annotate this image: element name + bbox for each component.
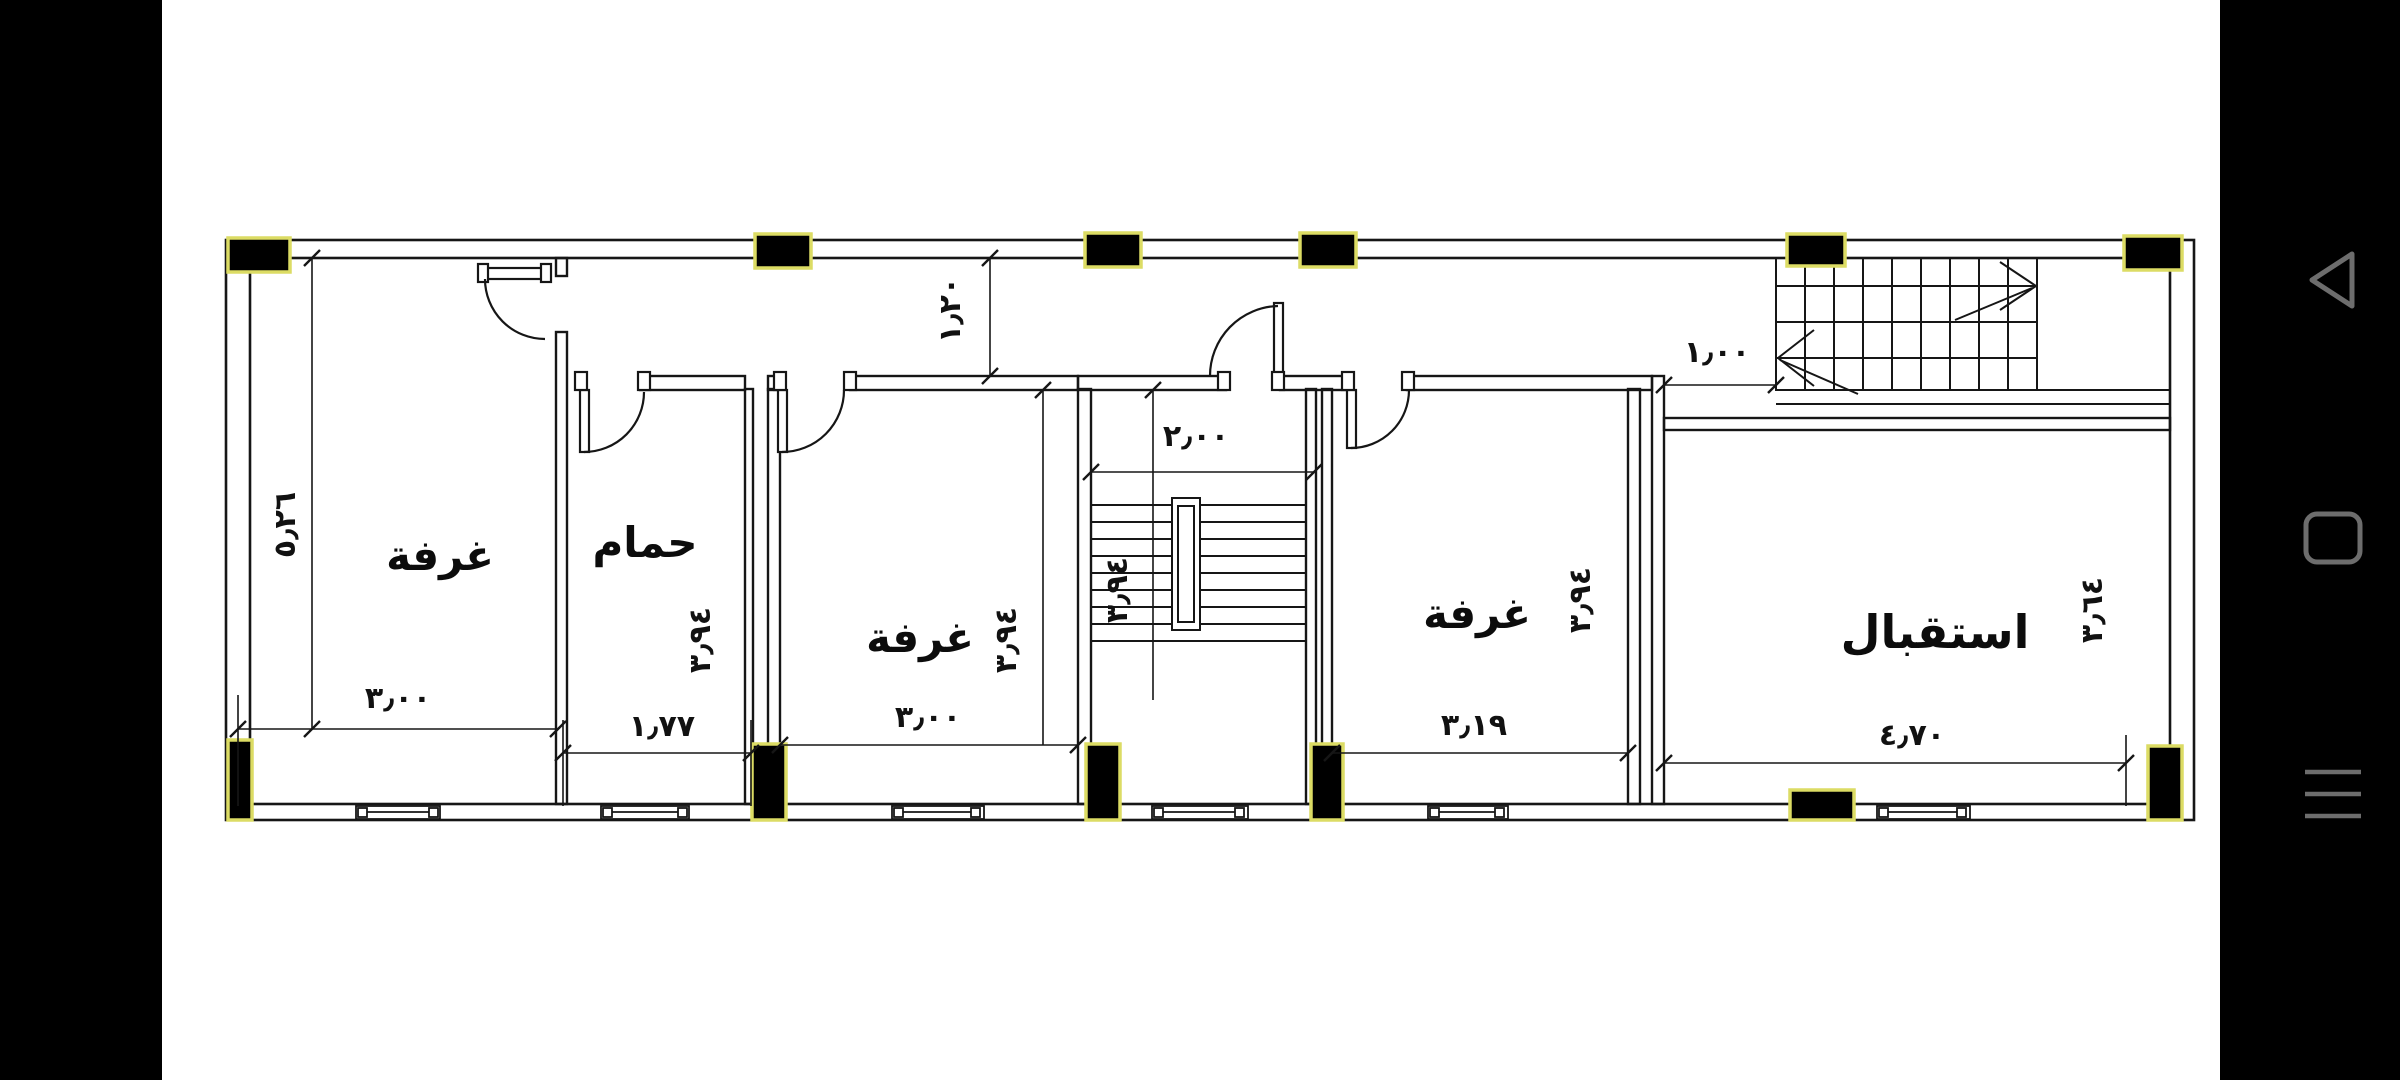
door-leaf-roommiddle [778, 390, 787, 452]
window [892, 806, 984, 819]
dim-room-middle-depth: ٣٫٩٤ [989, 607, 1024, 673]
dim-room-left-width: ٣٫٠٠ [365, 681, 431, 716]
column [752, 744, 786, 820]
door-post [1272, 372, 1284, 390]
dim-room-right-depth: ٣٫٩٤ [1563, 567, 1598, 633]
door-leaf-entrance [1274, 303, 1283, 376]
dim-stair-depth: ٣٫٩٤ [1100, 557, 1135, 623]
stair-rail-outer [1172, 498, 1200, 630]
room-label-left: غرفة [386, 531, 494, 581]
window [1877, 806, 1970, 819]
dim-stair-width: ٢٫٠٠ [1163, 419, 1229, 454]
room-label-bathroom: حمام [593, 518, 698, 568]
dim-stair-passage: ١٫٠٠ [1684, 335, 1750, 370]
door-leaf-leftroom [485, 268, 547, 279]
phone-screen: غرفة حمام غرفة غرفة استقبال ٣٫٠٠ ١٫٧٧ ٣٫… [0, 0, 2400, 1080]
door-post [478, 264, 488, 282]
window [601, 806, 689, 819]
dim-room-right-width: ٣٫١٩ [1441, 708, 1507, 743]
column [755, 234, 811, 268]
column [1086, 744, 1120, 820]
door-post [1342, 372, 1354, 390]
dim-overall-left: ٥٫٢٦ [268, 492, 303, 558]
door-post [1402, 372, 1414, 390]
door-post [541, 264, 551, 282]
column [1790, 790, 1854, 820]
door-leaf-roomright [1347, 390, 1356, 448]
column [2124, 236, 2182, 270]
room-label-middle: غرفة [866, 613, 974, 663]
door-post [774, 372, 786, 390]
column [1311, 744, 1343, 820]
column [228, 238, 290, 272]
column [2148, 746, 2182, 820]
dim-room-middle-width: ٣٫٠٠ [895, 700, 961, 735]
door-post [844, 372, 856, 390]
column [1300, 233, 1356, 267]
column [1787, 234, 1845, 266]
column [1085, 233, 1141, 267]
window [1152, 806, 1248, 819]
dim-bathroom-depth: ٣٫٩٤ [683, 607, 718, 673]
door-post [638, 372, 650, 390]
room-label-reception: استقبال [1841, 605, 2030, 659]
door-post [575, 372, 587, 390]
dim-reception-width: ٤٫٧٠ [1879, 718, 1945, 753]
dim-bathroom-width: ١٫٧٧ [629, 709, 695, 744]
door-post [1218, 372, 1230, 390]
floor-plan-canvas: غرفة حمام غرفة غرفة استقبال ٣٫٠٠ ١٫٧٧ ٣٫… [0, 0, 2400, 1080]
door-leaf-bathroom [580, 390, 589, 452]
window [356, 806, 440, 819]
column [228, 740, 252, 820]
room-label-right: غرفة [1423, 589, 1531, 639]
dim-corridor-depth: ١٫٢٠ [933, 277, 968, 343]
window [1428, 806, 1508, 819]
dim-reception-depth: ٣٫٦٤ [2075, 577, 2110, 643]
